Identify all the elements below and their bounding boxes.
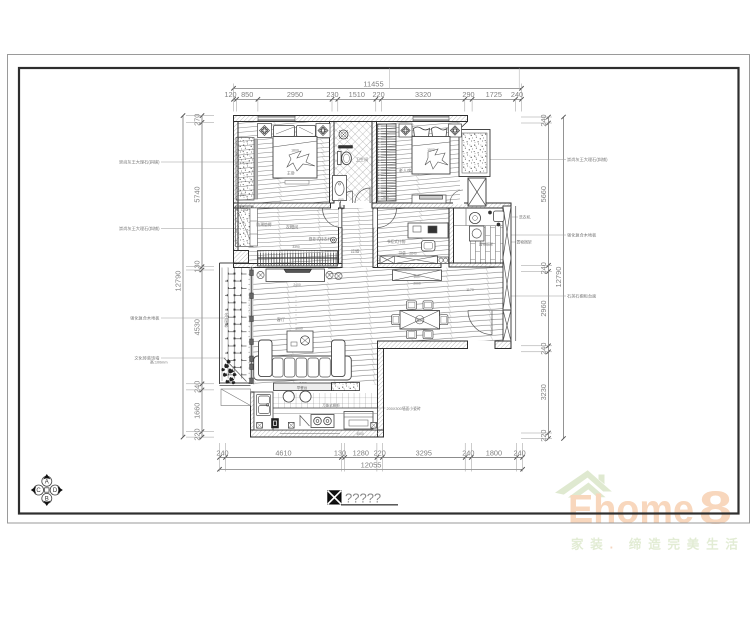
- svg-text:290: 290: [462, 90, 474, 99]
- svg-text:悬挂式挂衣杆: 悬挂式挂衣杆: [309, 237, 332, 242]
- svg-text:1752: 1752: [240, 208, 248, 212]
- svg-text:220: 220: [539, 430, 548, 442]
- svg-text:200X300墙面小瓷砖: 200X300墙面小瓷砖: [387, 406, 421, 411]
- svg-text:240: 240: [539, 343, 548, 355]
- svg-text:240: 240: [193, 381, 202, 393]
- svg-text:220: 220: [374, 448, 386, 457]
- svg-text:4500: 4500: [356, 432, 364, 436]
- svg-text:600: 600: [338, 198, 344, 202]
- svg-text:3320: 3320: [415, 90, 431, 99]
- svg-text:240: 240: [514, 448, 526, 457]
- svg-text:2950: 2950: [287, 90, 303, 99]
- svg-text:240: 240: [539, 114, 548, 126]
- svg-text:1725: 1725: [486, 90, 502, 99]
- svg-text:240: 240: [216, 448, 228, 457]
- svg-text:卫生间: 卫生间: [356, 156, 369, 163]
- svg-text:1500: 1500: [427, 148, 435, 152]
- svg-text:过道: 过道: [351, 248, 360, 255]
- svg-text:1800: 1800: [486, 448, 502, 457]
- svg-text:家装.缔造完美生活: 家装.缔造完美生活: [571, 537, 738, 552]
- svg-text:240: 240: [539, 262, 548, 274]
- svg-text:书桌: 书桌: [398, 251, 406, 256]
- svg-text:书柜式什物: 书柜式什物: [387, 239, 406, 244]
- svg-text:鞋柜: 鞋柜: [414, 274, 422, 279]
- svg-text:早餐台: 早餐台: [297, 385, 308, 390]
- svg-text:强化复合木地板: 强化复合木地板: [567, 232, 597, 239]
- svg-text:D: D: [53, 488, 58, 494]
- svg-text:老人房: 老人房: [399, 167, 412, 174]
- svg-text:12790: 12790: [554, 267, 563, 288]
- svg-text:休闲阳台: 休闲阳台: [224, 312, 229, 327]
- svg-text:8: 8: [699, 482, 732, 534]
- svg-text:主卧: 主卧: [287, 170, 295, 177]
- svg-text:Ehome: Ehome: [568, 488, 694, 532]
- svg-text:A: A: [45, 480, 49, 486]
- svg-text:12055: 12055: [361, 460, 382, 469]
- svg-text:1510: 1510: [349, 90, 365, 99]
- svg-text:石英石橱柜台面: 石英石橱柜台面: [567, 293, 596, 300]
- svg-text:置物搁架: 置物搁架: [517, 240, 532, 245]
- svg-text:850: 850: [241, 90, 253, 99]
- svg-text:130: 130: [334, 448, 346, 457]
- svg-text:崇尚灰王大理石(斜铺): 崇尚灰王大理石(斜铺): [119, 225, 160, 232]
- svg-text:120: 120: [224, 90, 236, 99]
- svg-text:高:100mm: 高:100mm: [150, 360, 168, 365]
- svg-text:1170: 1170: [466, 288, 474, 292]
- svg-text:2400: 2400: [293, 283, 301, 287]
- svg-text:洗衣机: 洗衣机: [519, 215, 531, 220]
- svg-text:220: 220: [193, 428, 202, 440]
- svg-text:客厅: 客厅: [277, 316, 285, 323]
- svg-text:5740: 5740: [193, 186, 202, 202]
- svg-text:11455: 11455: [363, 79, 383, 88]
- svg-text:置物搁架: 置物搁架: [479, 242, 493, 247]
- svg-text:崇尚灰王大理石(斜铺): 崇尚灰王大理石(斜铺): [567, 156, 608, 163]
- svg-text:3390: 3390: [292, 245, 300, 249]
- svg-text:12790: 12790: [174, 271, 183, 292]
- svg-text:1800: 1800: [291, 149, 299, 153]
- svg-text:衣帽间: 衣帽间: [286, 224, 299, 231]
- svg-text:230: 230: [326, 90, 338, 99]
- svg-text:强化复合木地板: 强化复合木地板: [130, 315, 160, 322]
- svg-text:850: 850: [240, 193, 246, 197]
- svg-text:1660: 1660: [193, 403, 202, 419]
- svg-text:1000: 1000: [295, 327, 303, 331]
- svg-text:4610: 4610: [275, 448, 291, 457]
- svg-text:5660: 5660: [539, 186, 548, 202]
- svg-text:2840: 2840: [409, 252, 417, 256]
- svg-text:4530: 4530: [193, 319, 202, 335]
- svg-text:?????: ?????: [345, 491, 381, 506]
- svg-text:220: 220: [373, 90, 385, 99]
- svg-text:240: 240: [462, 448, 474, 457]
- svg-text:2000: 2000: [413, 281, 421, 285]
- svg-text:1280: 1280: [353, 448, 369, 457]
- svg-text:600: 600: [383, 195, 389, 199]
- svg-text:3230: 3230: [539, 384, 548, 400]
- svg-text:崇尚灰王大理石(斜铺): 崇尚灰王大理石(斜铺): [119, 159, 160, 166]
- svg-text:餐厅: 餐厅: [416, 318, 424, 323]
- svg-text:2960: 2960: [539, 300, 548, 316]
- svg-text:C: C: [36, 488, 41, 494]
- svg-text:防潮垫褥: 防潮垫褥: [256, 222, 271, 227]
- svg-text:万能式橱柜: 万能式橱柜: [322, 403, 340, 408]
- svg-text:3295: 3295: [416, 448, 432, 457]
